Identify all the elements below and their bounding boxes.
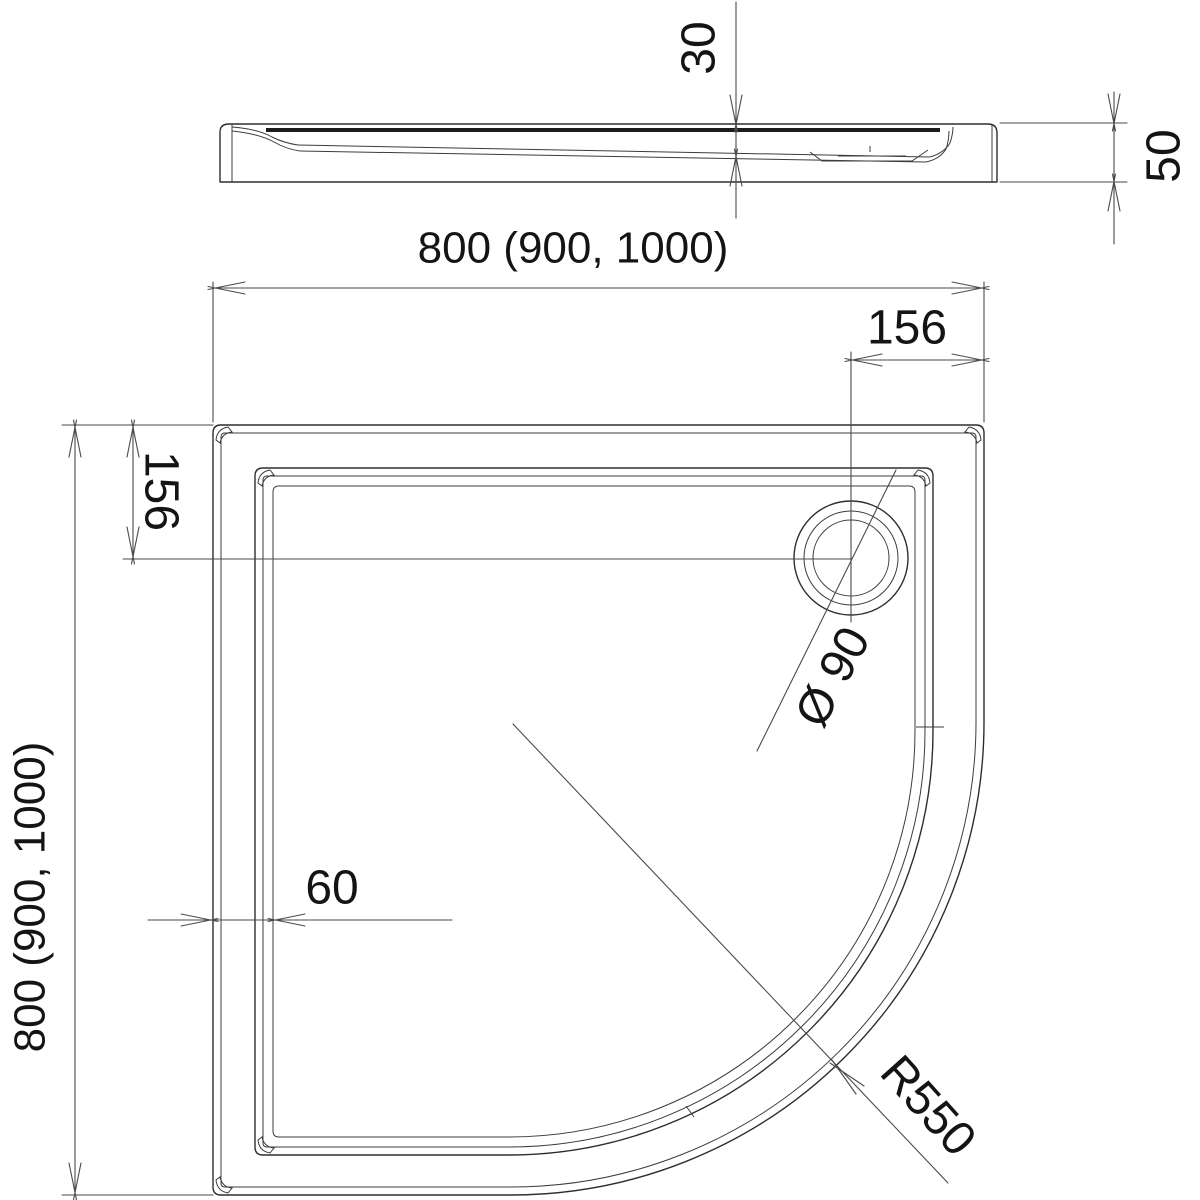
corner-radius-label: R550 [870, 1046, 986, 1167]
corner-detail-outer-bl [216, 1177, 232, 1193]
plan-basin-outline [255, 468, 933, 1155]
corner-detail-outer-tl [216, 427, 232, 443]
corner-detail-outer-tr [965, 427, 981, 443]
drawing-canvas: 30 50 800 (900, 1000) 156 156 800 (900, … [0, 0, 1200, 1200]
dimension-drain-offset-top-156 [845, 352, 989, 622]
side-elevation-view [220, 124, 997, 182]
tray-height-label: 50 [1138, 129, 1191, 182]
dimension-corner-radius-550 [513, 724, 948, 1183]
wall-thickness-label: 60 [305, 862, 358, 915]
dimension-drain-offset-left-156 [123, 420, 851, 564]
corner-detail-basin-bl [258, 1137, 274, 1153]
side-outline [220, 124, 997, 182]
side-floor-slope-a [298, 145, 930, 157]
drain-offset-left-label: 156 [135, 451, 188, 531]
drain-diameter-label: Ø 90 [785, 619, 881, 736]
corner-detail-basin-tr [914, 470, 930, 486]
depth-left-label: 800 (900, 1000) [6, 742, 55, 1053]
technical-drawing: 30 50 800 (900, 1000) 156 156 800 (900, … [0, 0, 1200, 1200]
radius-line [513, 724, 948, 1183]
plan-outer-outline [213, 425, 984, 1195]
drain-offset-top-label: 156 [867, 302, 947, 355]
corner-detail-basin-tl [258, 470, 274, 486]
dimension-wall-60 [148, 914, 452, 926]
dimension-rim-depth-30 [730, 2, 742, 218]
plan-basin-floor-line [273, 486, 915, 1137]
rim-depth-label: 30 [673, 21, 726, 74]
dimension-labels: 30 50 800 (900, 1000) 156 156 800 (900, … [6, 21, 1191, 1166]
width-top-label: 800 (900, 1000) [418, 224, 729, 273]
dimension-height-50 [1000, 92, 1127, 244]
plan-outer-offset-line [221, 433, 976, 1187]
plan-basin-offset-line [263, 476, 925, 1147]
side-floor-slope-b [300, 151, 926, 162]
side-drain-recess-step [838, 146, 906, 156]
plan-view [213, 425, 984, 1195]
